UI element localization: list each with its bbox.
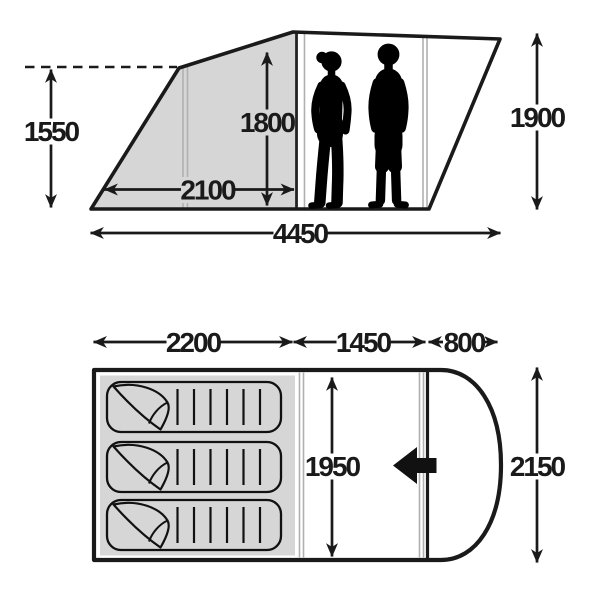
dim-label-bedroom-length: 2100: [180, 175, 236, 206]
sleeping-bag-2: [107, 442, 281, 492]
dim-porch-width: 800: [429, 327, 498, 358]
dim-label-total-length: 4450: [273, 218, 329, 249]
dim-front-height: 1550: [24, 70, 80, 208]
dim-label-porch-width: 800: [444, 327, 486, 358]
dim-total-length: 4450: [91, 218, 501, 249]
tent-dimensions-diagram: 1550 1800 2100 4450 1900: [0, 0, 600, 600]
sleeping-bag-3: [107, 500, 281, 550]
dim-living-width: 1450: [294, 327, 426, 358]
floor-plan-diagram: 2200 1450 800 1950 2150: [94, 327, 566, 563]
sleeping-bag-1: [107, 382, 281, 432]
dim-total-depth: 2150: [510, 368, 566, 563]
dim-label-total-depth: 2150: [510, 451, 566, 482]
dim-label-bedroom-width: 2200: [166, 327, 222, 358]
diagram-canvas: 1550 1800 2100 4450 1900: [0, 0, 600, 600]
dim-label-peak-height: 1900: [510, 102, 566, 133]
dim-label-front-height: 1550: [24, 116, 80, 147]
dim-bedroom-width: 2200: [94, 327, 293, 358]
dim-label-interior-height: 1800: [240, 107, 296, 138]
dim-peak-height: 1900: [510, 34, 566, 210]
dim-label-interior-depth: 1950: [305, 451, 361, 482]
dim-label-living-width: 1450: [336, 327, 392, 358]
side-view-diagram: 1550 1800 2100 4450 1900: [24, 32, 566, 249]
